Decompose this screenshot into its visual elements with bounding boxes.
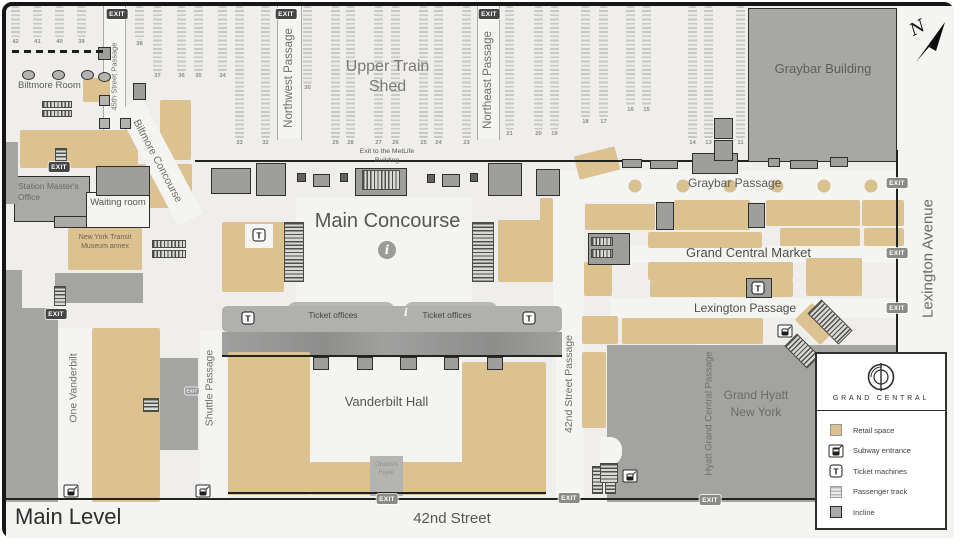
track-bumper — [72, 50, 79, 53]
retail-space — [582, 352, 606, 428]
exit-sign: EXIT — [276, 9, 297, 19]
structure-block — [400, 357, 417, 370]
forty-fifth-street-passage-label: 45th Street Passage — [110, 23, 119, 131]
metlife-exit-label: Exit to the MetLife Building — [350, 148, 424, 166]
legend-item-incline: Incline — [829, 502, 945, 523]
hyatt-entrance — [600, 437, 622, 465]
subway-icon-part — [205, 486, 209, 490]
subway-entrance-icon — [623, 470, 638, 483]
onassis-foyer-label: Onassis Foyer — [371, 461, 402, 477]
lexington-avenue-label: Lexington Avenue — [920, 164, 937, 354]
grand-central-main-level-map: Upper Train Shed Graybar Building Main C… — [0, 0, 960, 544]
structure-block — [650, 160, 678, 169]
track-number-label: 11 — [733, 140, 749, 146]
ticket-machine-icon: T — [523, 312, 536, 325]
ticket-machine-icon: T — [752, 282, 765, 295]
subway-icon-part — [628, 474, 633, 476]
exit-sign: EXIT — [107, 9, 128, 19]
train-track — [303, 6, 312, 84]
shuttle-west-mass — [158, 358, 198, 450]
exit-sign: EXIT — [185, 388, 199, 395]
subway-entrance-icon — [196, 485, 211, 498]
train-track — [599, 6, 608, 118]
column-dot — [818, 180, 831, 193]
train-track — [194, 6, 203, 72]
track-number-label: 23 — [459, 140, 475, 146]
train-track — [261, 6, 270, 139]
train-track — [11, 6, 20, 38]
structure-block — [830, 157, 848, 167]
info-icon: i — [378, 241, 396, 259]
doorway-block — [297, 173, 306, 182]
track-number-label: 25 — [416, 140, 432, 146]
retail-space-icon — [829, 423, 846, 437]
legend-item-label: Retail space — [853, 426, 894, 435]
track-number-label: 35 — [191, 73, 207, 79]
structure-block — [714, 140, 733, 161]
structure-block — [96, 166, 150, 196]
subway-icon-part — [783, 329, 788, 331]
waiting-room-label: Waiting room — [90, 197, 146, 209]
legend-item-ticket-machines: TTicket machines — [829, 461, 945, 482]
exit-sign: EXIT — [887, 178, 908, 188]
north-letter: N — [906, 15, 930, 41]
legend-panel: GRAND CENTRAL Retail spaceSubway entranc… — [815, 352, 947, 530]
subway-icon-part — [201, 489, 206, 491]
structure-block — [357, 357, 373, 370]
column-oval — [81, 70, 94, 80]
subway-icon-part — [787, 326, 791, 330]
shuttle-passage-label: Shuttle Passage — [204, 341, 216, 436]
stairs-icon — [42, 101, 72, 108]
legend-items: Retail spaceSubway entranceTTicket machi… — [817, 411, 945, 523]
structure-block — [748, 203, 765, 228]
ticket-offices-label-west: Ticket offices — [300, 310, 366, 321]
legend-item-label: Subway entrance — [853, 446, 911, 455]
structure-block — [133, 83, 146, 100]
incline-icon — [829, 505, 846, 519]
station-masters-office-footprint — [54, 216, 90, 228]
stairs-icon — [362, 170, 400, 190]
train-track — [550, 6, 559, 130]
structure-block — [487, 357, 503, 370]
track-bumper — [60, 50, 67, 53]
track-number-label: 36 — [174, 73, 190, 79]
structure-block — [768, 158, 780, 167]
biltmore-south-mass — [55, 273, 143, 303]
exit-sign: EXIT — [479, 9, 500, 19]
retail-space — [582, 316, 618, 344]
wall-line — [6, 498, 899, 500]
stairs-icon — [591, 249, 613, 258]
structure-block — [442, 174, 460, 187]
column-square — [99, 95, 110, 106]
passage-wall-line — [103, 6, 104, 134]
track-number-label: 40 — [52, 39, 68, 45]
train-track — [462, 6, 471, 139]
grand-central-market-label: Grand Central Market — [686, 245, 811, 261]
northwest-passage-label: Northwest Passage — [283, 22, 295, 134]
legend-item-retail-space: Retail space — [829, 420, 945, 441]
ticket-offices-label-east: Ticket offices — [414, 310, 480, 321]
stairs-icon — [54, 286, 66, 306]
stairs-icon — [55, 148, 67, 162]
track-number-label: 30 — [300, 85, 316, 91]
train-track — [688, 6, 697, 139]
track-number-label: 32 — [258, 140, 274, 146]
train-track — [534, 6, 543, 130]
structure-block — [313, 357, 329, 370]
subway-entrance-icon — [829, 444, 846, 458]
passage-wall-line — [499, 6, 500, 140]
track-bumper — [48, 50, 55, 53]
exit-sign: EXIT — [700, 495, 721, 505]
track-number-label: 28 — [343, 140, 359, 146]
train-track — [135, 6, 144, 40]
passage-wall-line — [477, 6, 478, 140]
subway-icon-part — [632, 471, 636, 475]
column-oval — [52, 70, 65, 80]
track-number-label: 38 — [132, 41, 148, 47]
ticket-machine-icon: T — [830, 465, 843, 478]
track-number-label: 15 — [639, 107, 655, 113]
info-icon-small: i — [404, 308, 408, 319]
northeast-passage-label: Northeast Passage — [482, 24, 494, 136]
stairs-icon — [152, 250, 186, 258]
vanderbilt-hall-label: Vanderbilt Hall — [334, 394, 439, 410]
track-number-label: 17 — [596, 119, 612, 125]
train-track — [704, 6, 713, 139]
stairs-icon — [143, 398, 159, 412]
structure-block — [536, 169, 560, 196]
track-number-label: 24 — [431, 140, 447, 146]
structure-block — [488, 163, 522, 196]
track-bumper — [84, 50, 91, 53]
track-number-label: 20 — [531, 131, 547, 137]
structure-block — [790, 160, 818, 169]
track-number-label: 26 — [388, 140, 404, 146]
retail-space — [864, 228, 904, 246]
doorway-block — [427, 174, 435, 183]
passage-wall-line — [277, 6, 278, 140]
track-number-label: 42 — [8, 39, 24, 45]
retail-swatch — [830, 424, 842, 436]
exit-sign: EXIT — [46, 309, 67, 319]
legend-header: GRAND CENTRAL — [817, 354, 945, 411]
legend-item-label: Passenger track — [853, 487, 907, 496]
retail-space — [584, 262, 612, 296]
hyatt-grand-central-passage-label: Hyatt Grand Central Passage — [704, 330, 715, 498]
subway-icon-part — [834, 449, 839, 451]
track-bumper — [24, 50, 31, 53]
main-level-title: Main Level — [15, 503, 121, 531]
legend-item-label: Ticket machines — [853, 467, 907, 476]
lexington-passage-label: Lexington Passage — [694, 301, 796, 316]
station-masters-office-label: Station Master's Office — [18, 181, 88, 204]
track-number-label: 21 — [502, 131, 518, 137]
stairs-icon — [600, 463, 618, 483]
track-number-label: 34 — [215, 73, 231, 79]
passenger-track-icon — [829, 485, 846, 499]
track-number-label: 37 — [150, 73, 166, 79]
structure-block — [313, 174, 330, 187]
retail-space — [766, 200, 860, 226]
train-track — [235, 6, 244, 139]
exit-sign: EXIT — [377, 494, 398, 504]
doorway-block — [340, 173, 348, 182]
exit-sign: EXIT — [887, 248, 908, 258]
train-track — [33, 6, 42, 38]
north-compass-icon: N — [904, 12, 952, 66]
track-bumper — [36, 50, 43, 53]
track-number-label: 29 — [328, 140, 344, 146]
retail-space — [92, 328, 160, 502]
retail-space — [806, 258, 862, 296]
incline-swatch — [830, 506, 842, 518]
track-number-label: 19 — [547, 131, 563, 137]
forty-second-street-passage-label: 42nd Street Passage — [563, 328, 575, 440]
west-building-mass — [6, 142, 18, 204]
main-concourse-label: Main Concourse — [295, 209, 480, 234]
track-bumper — [96, 50, 103, 53]
subway-icon-part — [69, 489, 74, 491]
train-track — [505, 6, 514, 130]
legend-brand: GRAND CENTRAL — [833, 395, 929, 402]
track-number-label: 18 — [578, 119, 594, 125]
forty-second-street-label: 42nd Street — [382, 510, 522, 529]
retail-space — [20, 130, 138, 168]
train-track — [218, 6, 227, 72]
transit-museum-label: New York Transit Museum annex — [72, 233, 138, 251]
graybar-passage-label: Graybar Passage — [688, 176, 781, 191]
subway-icon-part — [73, 486, 77, 490]
subway-entrance-icon — [829, 444, 844, 457]
retail-space — [674, 200, 750, 230]
track-swatch — [830, 486, 842, 498]
legend-item-subway-entrance: Subway entrance — [829, 441, 945, 462]
ticket-machine-icon: T — [253, 229, 266, 242]
stairs-icon — [152, 240, 186, 248]
stairs-icon — [591, 237, 613, 246]
column-dot — [865, 180, 878, 193]
structure-block — [256, 163, 286, 196]
column-oval — [22, 70, 35, 80]
stairs-icon — [42, 110, 72, 117]
retail-space — [585, 204, 655, 230]
biltmore-room-label: Biltmore Room — [18, 80, 81, 92]
retail-space — [540, 198, 553, 278]
track-number-label: 14 — [685, 140, 701, 146]
graybar-building-label: Graybar Building — [763, 60, 883, 78]
passage-wall-line — [301, 6, 302, 140]
legend-item-label: Incline — [853, 508, 875, 517]
column-square — [99, 118, 110, 129]
structure-block — [622, 159, 642, 168]
grand-hyatt-label: Grand Hyatt New York — [722, 387, 790, 421]
grand-central-logo-icon — [866, 362, 896, 392]
retail-space — [780, 228, 860, 246]
ticket-office-band — [222, 306, 562, 332]
west-building-mass — [6, 308, 58, 502]
retail-space — [228, 352, 310, 495]
ticket-machines-icon: T — [829, 464, 846, 478]
track-number-label: 27 — [371, 140, 387, 146]
structure-block — [656, 202, 674, 230]
exit-sign: EXIT — [559, 493, 580, 503]
subway-entrance-icon — [778, 325, 793, 338]
structure-block — [444, 357, 459, 370]
train-track — [153, 6, 162, 72]
doorway-block — [470, 173, 478, 182]
subway-icon-part — [838, 446, 842, 450]
train-track — [642, 6, 651, 106]
train-track — [736, 6, 745, 139]
train-track — [77, 6, 86, 38]
structure-block — [211, 168, 251, 194]
exit-sign: EXIT — [49, 162, 70, 172]
train-track — [581, 6, 590, 118]
corridor-floor — [310, 360, 462, 462]
train-track — [177, 6, 186, 72]
upper-train-shed-label: Upper Train Shed — [325, 57, 450, 97]
retail-space — [622, 318, 763, 344]
retail-space — [310, 462, 546, 495]
column-dot — [629, 180, 642, 193]
legend-item-passenger-track: Passenger track — [829, 482, 945, 503]
ticket-machine-icon: T — [242, 312, 255, 325]
subway-entrance-icon — [64, 485, 79, 498]
track-number-label: 41 — [30, 39, 46, 45]
exit-sign: EXIT — [887, 303, 908, 313]
track-number-label: 39 — [74, 39, 90, 45]
train-track — [55, 6, 64, 38]
graybar-building-footprint — [748, 8, 897, 162]
wall-line — [222, 355, 562, 357]
one-vanderbilt-label: One Vanderbilt — [68, 341, 80, 436]
track-number-label: 16 — [623, 107, 639, 113]
train-track — [626, 6, 635, 106]
track-number-label: 33 — [232, 140, 248, 146]
structure-block — [714, 118, 733, 139]
track-bumper — [12, 50, 19, 53]
